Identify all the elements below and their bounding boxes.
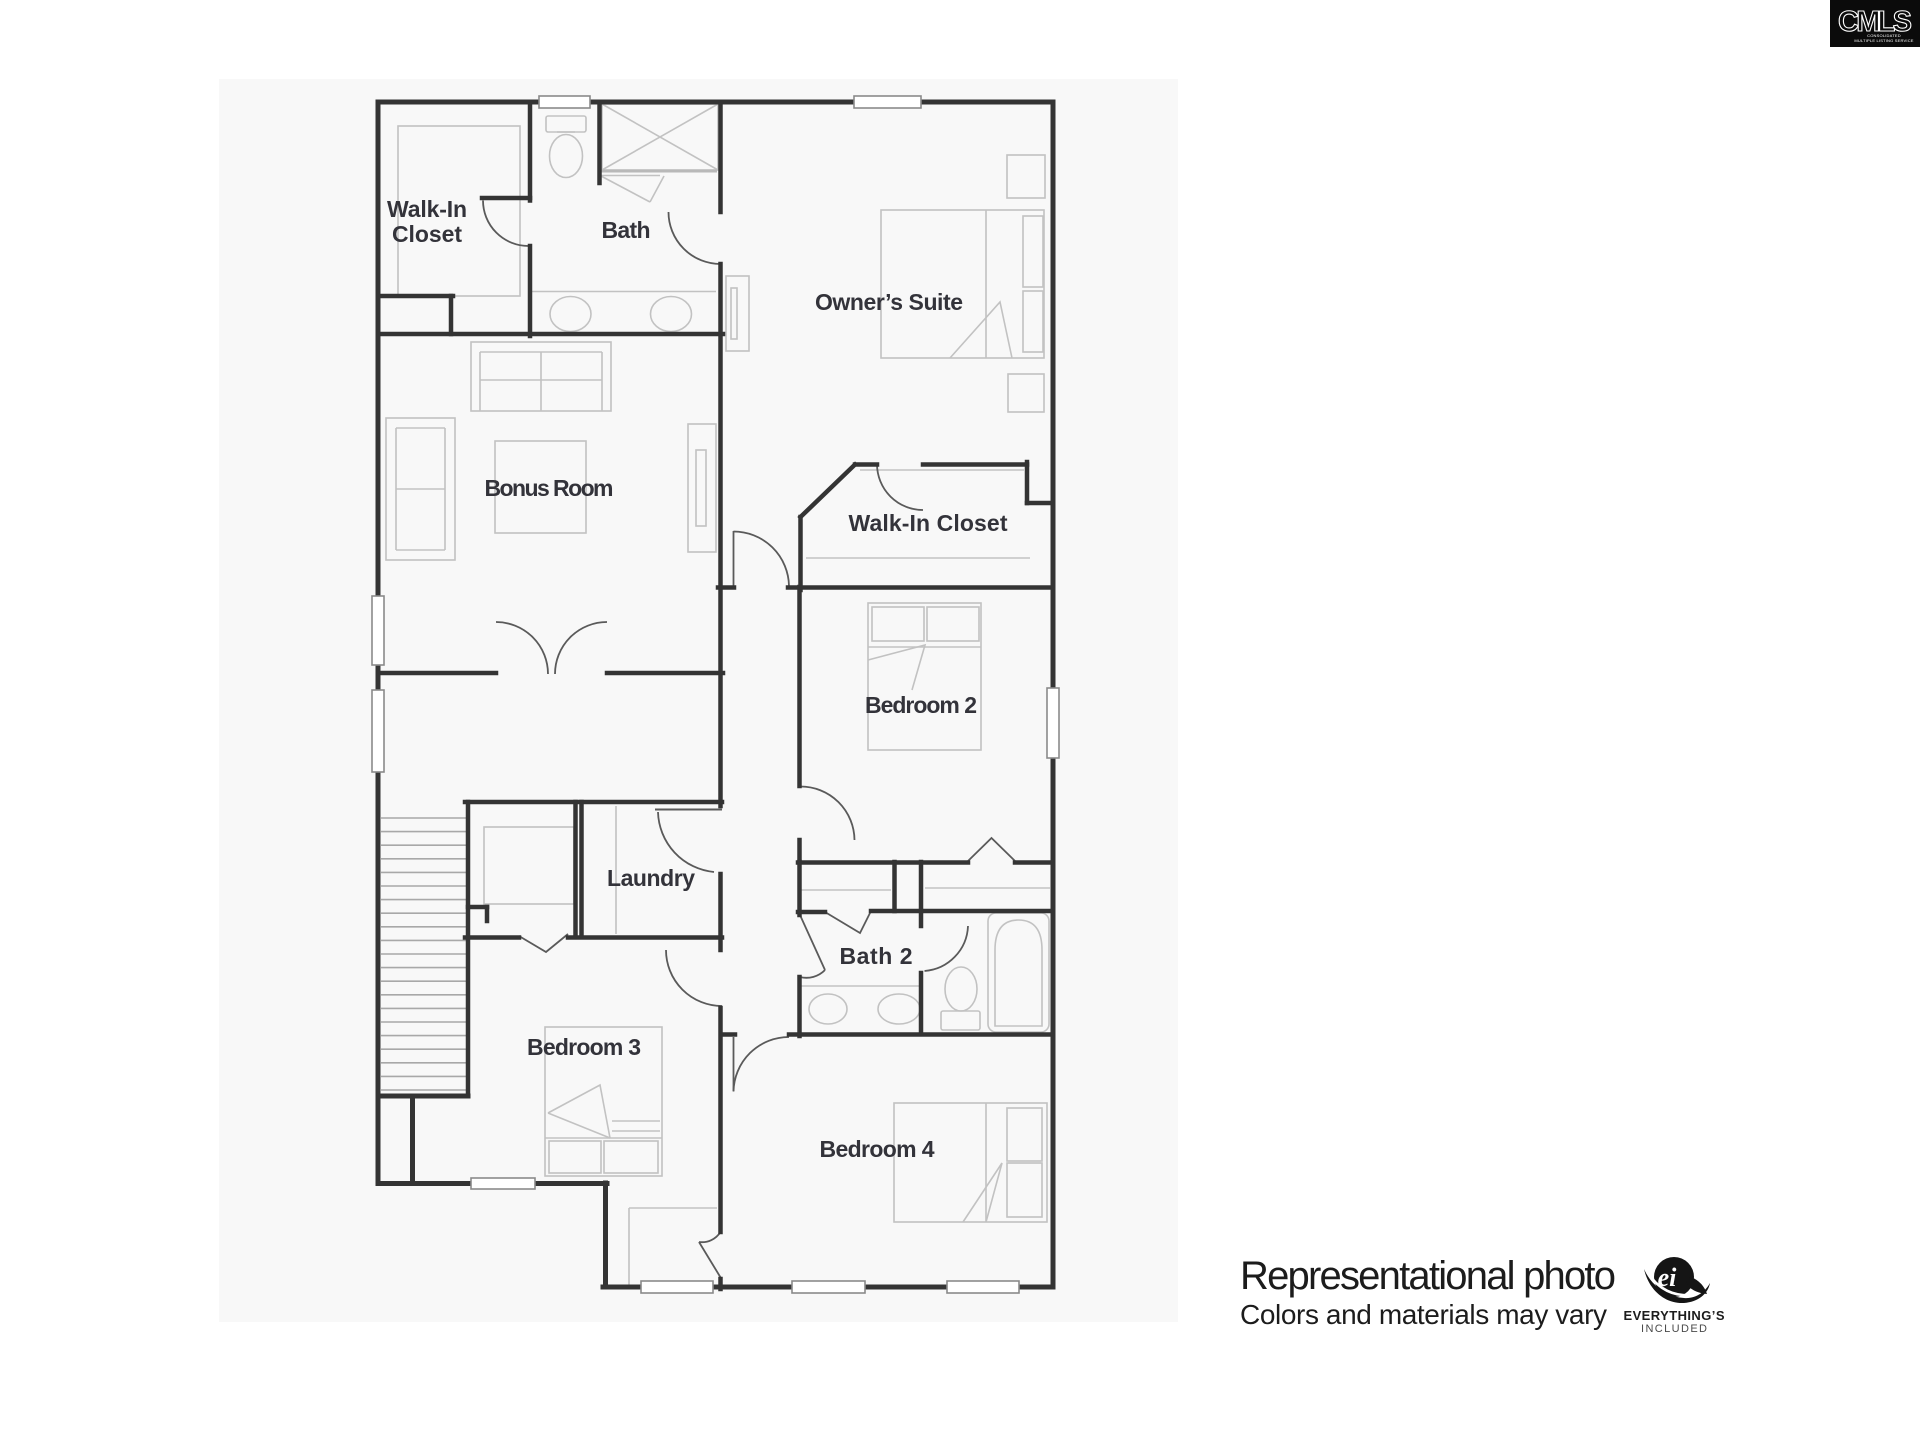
svg-text:Colors and materials may vary: Colors and materials may vary	[1240, 1299, 1607, 1330]
svg-text:MULTIPLE LISTING SERVICE: MULTIPLE LISTING SERVICE	[1854, 38, 1913, 43]
svg-text:Bath: Bath	[602, 217, 651, 243]
svg-text:Closet: Closet	[392, 221, 462, 247]
svg-text:Bonus Room: Bonus Room	[485, 475, 614, 501]
svg-text:Bedroom 4: Bedroom 4	[820, 1136, 935, 1162]
svg-text:Owner’s Suite: Owner’s Suite	[815, 289, 963, 315]
svg-text:EVERYTHING’S: EVERYTHING’S	[1624, 1308, 1725, 1323]
svg-text:INCLUDED: INCLUDED	[1641, 1323, 1707, 1335]
svg-text:Bedroom 3: Bedroom 3	[527, 1034, 641, 1060]
svg-text:Representational photo: Representational photo	[1240, 1254, 1616, 1298]
svg-text:Walk-In Closet: Walk-In Closet	[849, 510, 1008, 536]
svg-text:Bath 2: Bath 2	[840, 943, 913, 969]
svg-text:Laundry: Laundry	[607, 865, 695, 891]
svg-text:ei: ei	[1658, 1263, 1678, 1292]
svg-text:Bedroom 2: Bedroom 2	[865, 692, 977, 718]
svg-text:Walk-In: Walk-In	[387, 196, 467, 222]
